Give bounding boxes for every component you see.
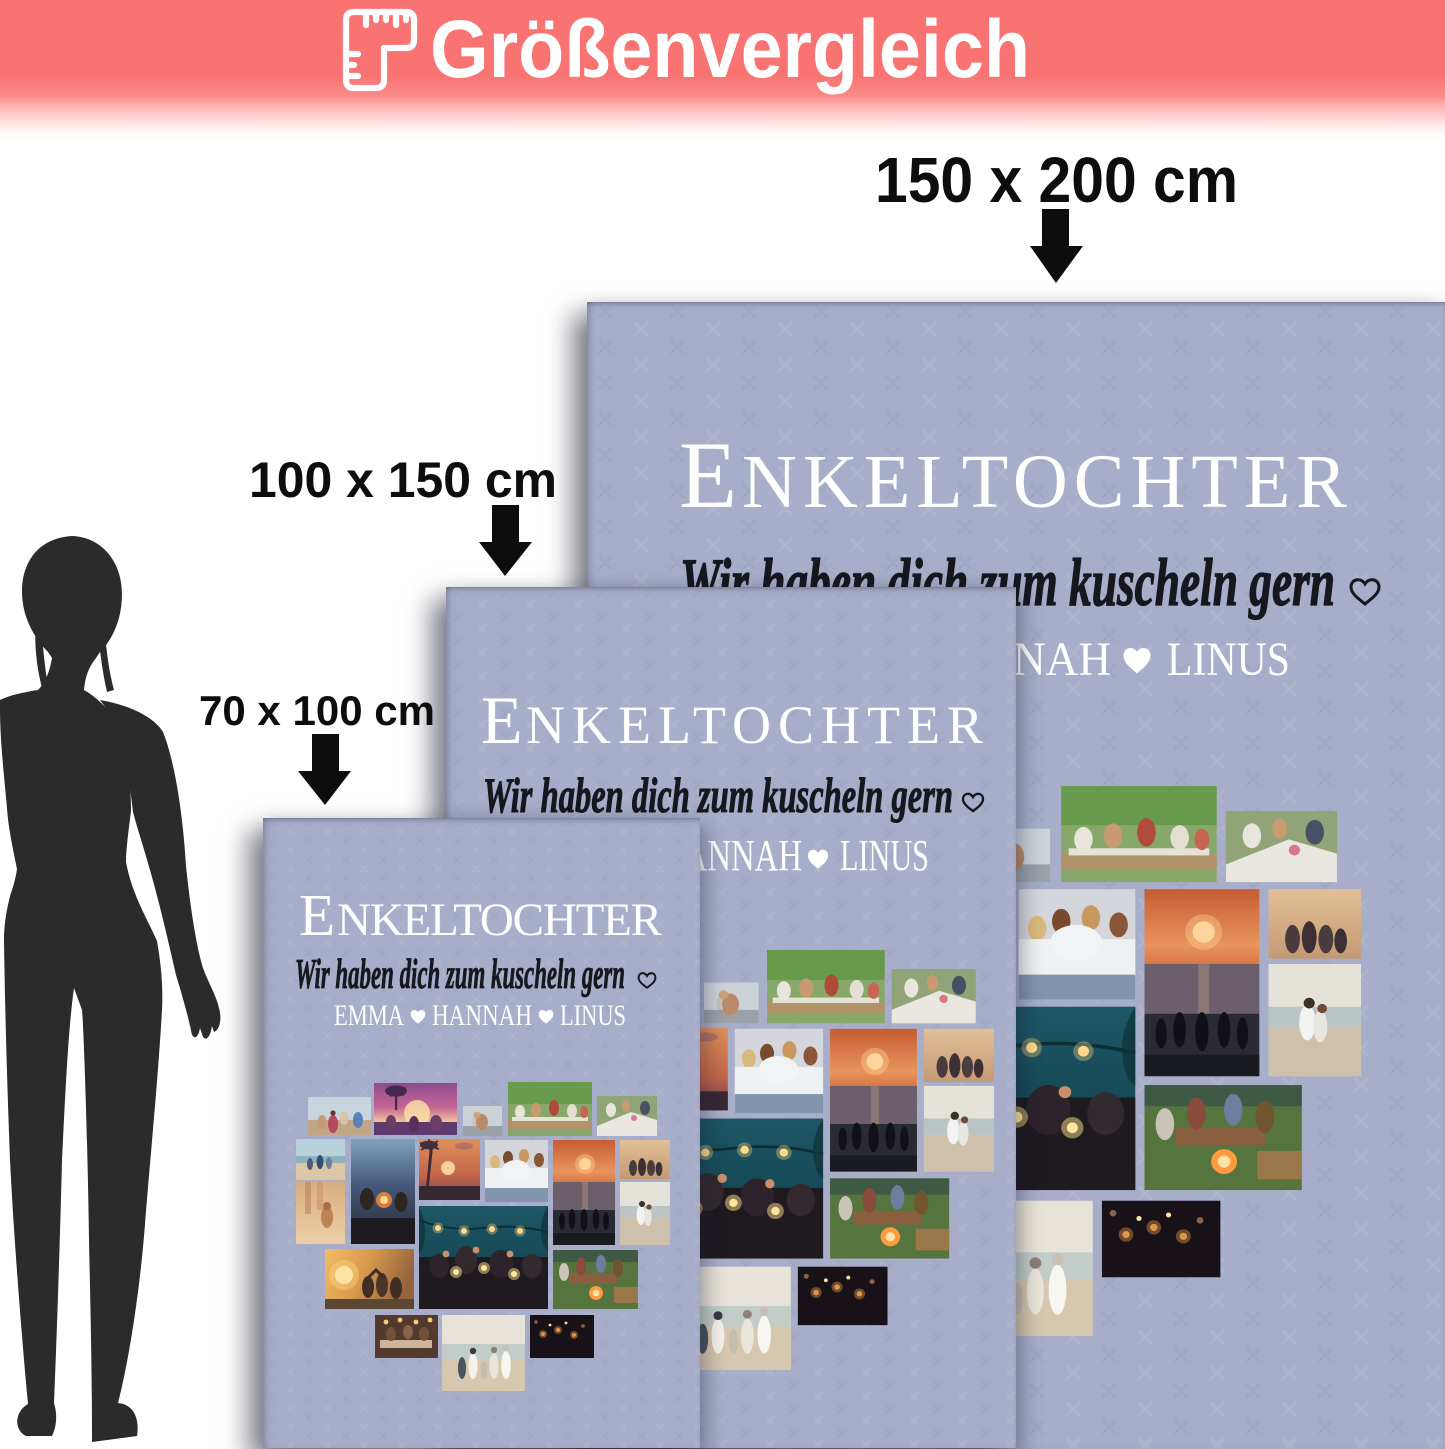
svg-text:70 x 100 cm: 70 x 100 cm (199, 687, 435, 734)
svg-text:100 x 150 cm: 100 x 150 cm (249, 452, 557, 508)
svg-text:150 x 200 cm: 150 x 200 cm (875, 144, 1238, 216)
